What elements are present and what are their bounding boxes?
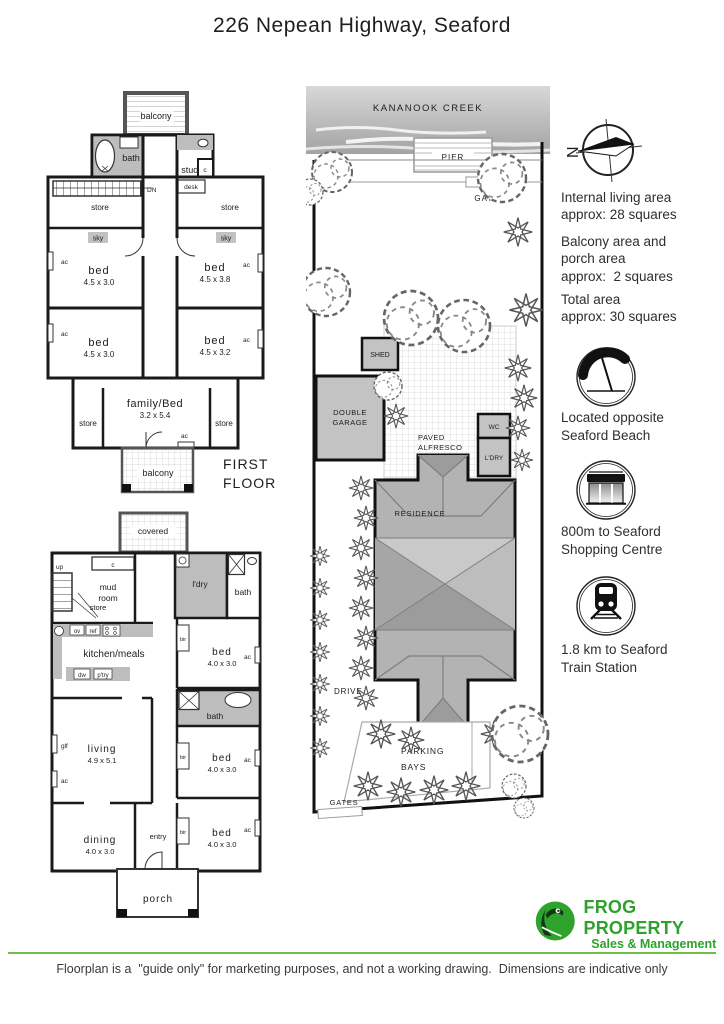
- svg-text:sky: sky: [93, 236, 104, 243]
- ac-label: ac: [244, 654, 252, 661]
- glf-label: glf: [61, 743, 68, 750]
- cooktop-icon: [103, 625, 120, 636]
- bathtub-icon: [96, 140, 115, 172]
- bathtub-icon: [225, 693, 251, 708]
- dishwasher-label: dw: [78, 673, 86, 679]
- ff-store-right: store: [221, 203, 239, 212]
- svg-text:bed: bed: [212, 647, 232, 658]
- svg-text:STORE: STORE: [595, 476, 617, 481]
- brand-subtitle: Sales & Management: [584, 938, 724, 952]
- svg-text:ac: ac: [181, 433, 189, 440]
- svg-text:KANANOOK CREEK: KANANOOK CREEK: [373, 103, 483, 114]
- svg-text:balcony: balcony: [142, 468, 174, 478]
- svg-text:balcony: balcony: [140, 111, 172, 121]
- shopping-note: 800m to Seaford Shopping Centre: [561, 523, 724, 559]
- gf-bath-top: bath: [227, 553, 260, 618]
- first-floor-plan: balcony bath study c desk: [42, 86, 286, 506]
- svg-text:sky: sky: [221, 236, 232, 243]
- gf-kitchen-label: kitchen/meals: [83, 649, 144, 660]
- gf-laundry: l'dry: [175, 553, 227, 618]
- shower-icon: [179, 692, 199, 710]
- ff-family-dims: 3.2 x 5.4: [140, 411, 171, 420]
- gf-covered-porch: covered: [120, 513, 187, 552]
- ac-label: ac: [244, 827, 252, 834]
- skylight-right: sky: [216, 232, 236, 243]
- svg-text:bed: bed: [204, 335, 225, 347]
- shower-icon: [229, 555, 245, 575]
- footer-divider-line: [8, 952, 716, 954]
- svg-text:ac: ac: [61, 331, 69, 338]
- svg-text:living: living: [88, 744, 117, 755]
- store-icon: STORE: [574, 458, 638, 522]
- svg-text:ac: ac: [61, 259, 69, 266]
- total-area-note: Total area approx: 30 squares: [561, 291, 724, 326]
- wc: WC: [478, 414, 510, 438]
- svg-text:RESIDENCE: RESIDENCE: [395, 509, 446, 518]
- disclaimer-text: Floorplan is a "guide only" for marketin…: [0, 962, 724, 976]
- svg-text:4.5 x 3.2: 4.5 x 3.2: [200, 348, 231, 357]
- svg-text:PAVED: PAVED: [418, 433, 445, 442]
- ff-bath-label: bath: [122, 153, 140, 163]
- ff-store-bl: store: [79, 419, 97, 428]
- svg-text:4.0 x 3.0: 4.0 x 3.0: [208, 840, 237, 849]
- svg-text:4.0 x 3.0: 4.0 x 3.0: [86, 847, 115, 856]
- skylight-left: sky: [88, 232, 108, 243]
- svg-text:ALFRESCO: ALFRESCO: [418, 443, 462, 452]
- svg-text:4.5 x 3.0: 4.5 x 3.0: [84, 278, 115, 287]
- bir-label: bir: [180, 755, 186, 761]
- bir-label: bir: [180, 637, 186, 643]
- gf-store-label: store: [90, 603, 107, 612]
- gf-mudroom-label: mud: [100, 582, 117, 592]
- gates-bottom: GATES: [318, 798, 363, 819]
- svg-text:FLOOR: FLOOR: [223, 475, 276, 491]
- beach-note: Located opposite Seaford Beach: [561, 409, 724, 445]
- pantry-label: p'try: [97, 673, 108, 679]
- ff-store-br: store: [215, 419, 233, 428]
- toilet-icon: [198, 139, 208, 147]
- svg-text:bath: bath: [207, 711, 224, 721]
- svg-text:4.5 x 3.0: 4.5 x 3.0: [84, 350, 115, 359]
- svg-text:DN: DN: [147, 187, 157, 194]
- gf-porch: porch: [117, 869, 198, 917]
- ff-desk-label: desk: [184, 184, 198, 191]
- oven-label: ov: [74, 629, 80, 635]
- train-icon: [574, 574, 638, 638]
- svg-text:covered: covered: [138, 526, 169, 536]
- svg-text:L'DRY: L'DRY: [485, 455, 504, 462]
- svg-text:FIRST: FIRST: [223, 456, 268, 472]
- ff-balcony-top: balcony: [125, 93, 187, 135]
- svg-text:bed: bed: [88, 265, 109, 277]
- gf-entry-label: entry: [150, 832, 167, 841]
- svg-text:GATES: GATES: [330, 798, 359, 807]
- ff-family-label: family/Bed: [127, 398, 183, 410]
- svg-text:porch: porch: [143, 894, 173, 905]
- svg-text:4.0 x 3.0: 4.0 x 3.0: [208, 765, 237, 774]
- svg-text:up: up: [56, 564, 64, 571]
- fridge-label: ref: [89, 629, 96, 635]
- sink-icon: [55, 627, 64, 636]
- svg-text:4.9 x 5.1: 4.9 x 5.1: [88, 756, 117, 765]
- svg-text:room: room: [98, 593, 117, 603]
- svg-text:bed: bed: [88, 337, 109, 349]
- frog-property-logo: FROG PROPERTY Sales & Management: [534, 897, 724, 952]
- external-laundry: L'DRY: [478, 438, 510, 476]
- svg-text:l'dry: l'dry: [192, 579, 208, 589]
- svg-text:PARKING: PARKING: [401, 746, 444, 756]
- svg-text:4.5 x 3.8: 4.5 x 3.8: [200, 275, 231, 284]
- svg-text:ac: ac: [243, 337, 251, 344]
- frog-logo-icon: [534, 897, 577, 945]
- ground-floor-plan: covered c mud room up store l'dry: [42, 503, 286, 935]
- ff-upper-block: bath study c: [92, 135, 213, 178]
- svg-text:BAYS: BAYS: [401, 762, 426, 772]
- svg-text:ac: ac: [243, 262, 251, 269]
- page-title: 226 Nepean Highway, Seaford: [0, 14, 724, 38]
- svg-text:DOUBLE: DOUBLE: [333, 408, 367, 417]
- floorplan-page: 226 Nepean Highway, Seaford balcony: [0, 0, 724, 1024]
- svg-text:bed: bed: [204, 262, 225, 274]
- svg-text:PIER: PIER: [442, 153, 465, 162]
- compass-north-label: N: [566, 146, 582, 158]
- balcony-area-note: Balcony area and porch area approx: 2 sq…: [561, 233, 724, 285]
- internal-area-note: Internal living area approx: 28 squares: [561, 189, 724, 224]
- compass: N: [566, 116, 646, 188]
- site-plan: KANANOOK CREEK PIER GATE PAVED ALFRESCO …: [306, 86, 550, 838]
- pier: PIER: [414, 138, 492, 172]
- svg-text:GARAGE: GARAGE: [332, 418, 367, 427]
- train-note: 1.8 km to Seaford Train Station: [561, 641, 724, 677]
- staircase-down: DN: [53, 181, 157, 196]
- ff-balcony-bottom: balcony: [122, 448, 193, 492]
- beach-umbrella-icon: [574, 345, 638, 409]
- ac-label: ac: [244, 757, 252, 764]
- gf-bath-mid: bath: [177, 690, 260, 726]
- toilet-icon: [248, 558, 257, 565]
- svg-text:dining: dining: [84, 835, 117, 846]
- residence: RESIDENCE: [375, 455, 515, 727]
- svg-text:bed: bed: [212, 828, 232, 839]
- svg-text:WC: WC: [489, 424, 500, 431]
- brand-name: FROG PROPERTY: [584, 897, 724, 938]
- svg-text:bath: bath: [235, 587, 252, 597]
- svg-text:SHED: SHED: [370, 352, 389, 359]
- svg-text:4.0 x 3.0: 4.0 x 3.0: [208, 659, 237, 668]
- ac-label: ac: [61, 778, 69, 785]
- bir-label: bir: [180, 830, 186, 836]
- ff-store-left: store: [91, 203, 109, 212]
- svg-text:bed: bed: [212, 753, 232, 764]
- first-floor-label: FIRST FLOOR: [223, 456, 276, 491]
- shed: SHED: [362, 338, 398, 370]
